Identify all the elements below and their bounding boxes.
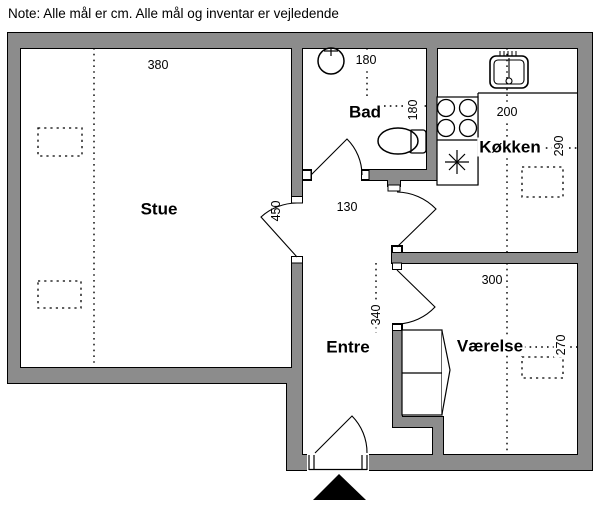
walls <box>8 33 592 470</box>
wall-entre-vaerelse <box>393 324 402 417</box>
entrance-opening <box>307 453 369 472</box>
room-label-vaerelse: Værelse <box>455 337 525 356</box>
door-kokken <box>397 192 436 247</box>
dim-vaerelse-height: 270 <box>554 333 569 358</box>
wall-left <box>8 33 20 383</box>
door-jambs <box>292 171 402 331</box>
door-vaerelse <box>397 270 435 324</box>
wall-stue-bottom <box>8 368 302 383</box>
dim-kokken-width: 200 <box>495 105 520 120</box>
dim-hall-width: 130 <box>337 201 358 214</box>
floor-plan: Note: Alle mål er cm. Alle mål og invent… <box>0 0 600 506</box>
door-entrance <box>315 416 367 453</box>
wall-right <box>578 33 592 470</box>
furniture-stue-bottom <box>38 281 81 308</box>
dim-bad-height: 180 <box>406 98 421 123</box>
wall-partition-jog <box>393 417 443 427</box>
room-label-kokken: Køkken <box>477 138 542 157</box>
wardrobe-icon <box>402 330 450 415</box>
dim-entre-height: 340 <box>369 303 384 328</box>
plan-note: Note: Alle mål er cm. Alle mål og invent… <box>8 7 339 21</box>
wall-bad-kokken <box>427 48 437 180</box>
floor-plan-canvas <box>0 0 600 506</box>
dim-stue-width: 380 <box>148 59 169 72</box>
wall-entre-left <box>287 368 302 470</box>
wall-top <box>8 33 592 48</box>
dim-stue-height: 450 <box>270 201 283 222</box>
door-bad <box>311 139 362 175</box>
round-washbasin-icon <box>318 48 344 74</box>
room-label-bad: Bad <box>349 104 381 121</box>
wall-kokken-vaerelse <box>392 253 578 263</box>
room-label-stue: Stue <box>141 201 178 218</box>
wall-stue-entre <box>292 257 302 368</box>
dim-bad-width: 180 <box>354 53 379 68</box>
entrance-triangle-icon <box>313 474 366 500</box>
dim-vaerelse-width: 300 <box>482 274 503 287</box>
wall-stue-bad <box>292 48 302 202</box>
furniture-vaerelse <box>522 357 563 378</box>
room-label-entre: Entre <box>326 339 369 356</box>
furniture-kokken <box>522 167 563 197</box>
wall-partition-lower <box>433 427 443 455</box>
furniture-stue-top <box>38 128 82 156</box>
dim-kokken-height: 290 <box>552 134 567 159</box>
kitchen-sink-icon <box>490 51 528 88</box>
toilet-icon <box>378 128 426 154</box>
